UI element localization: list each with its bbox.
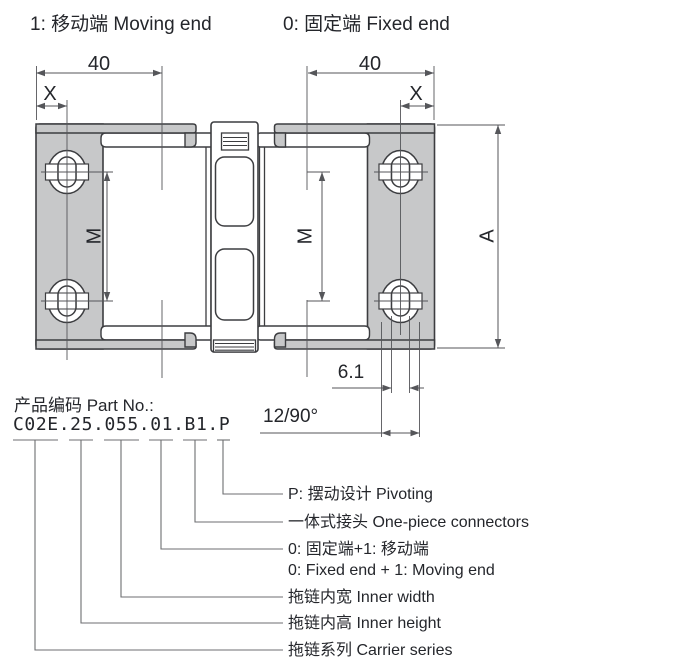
breakdown-row-inner-height: 拖链内高 Inner height bbox=[288, 613, 441, 634]
dim-slot-width: 6.1 bbox=[321, 362, 381, 384]
right-top-step bbox=[275, 133, 286, 147]
part-number-label: 产品编码 Part No.: bbox=[14, 391, 154, 416]
breakdown-row-ends-en: 0: Fixed end + 1: Moving end bbox=[288, 560, 495, 581]
breakdown-connector-lines bbox=[13, 440, 283, 650]
left-bottom-step bbox=[185, 333, 196, 347]
dim-hole-pitch-left: M bbox=[84, 228, 107, 245]
fixed-end-label: 0: 固定端 Fixed end bbox=[283, 9, 450, 36]
right-bottom-flange bbox=[275, 340, 435, 349]
dim-link-pitch: 12/90° bbox=[263, 406, 318, 428]
breakdown-row-connectors: 一体式接头 One-piece connectors bbox=[288, 512, 529, 533]
left-top-step bbox=[185, 133, 196, 147]
diagram-canvas: 1: 移动端 Moving end 0: 固定端 Fixed end 40 40… bbox=[0, 0, 700, 663]
left-bottom-flange bbox=[36, 340, 196, 349]
breakdown-row-pivoting: P: 摆动设计 Pivoting bbox=[288, 484, 433, 505]
dim-offset-left: X bbox=[30, 83, 70, 106]
dim-offset-right: X bbox=[396, 83, 436, 106]
breakdown-row-inner-width: 拖链内宽 Inner width bbox=[288, 587, 435, 608]
connector-window-top bbox=[216, 157, 254, 226]
moving-end-label: 1: 移动端 Moving end bbox=[30, 9, 212, 36]
dim-hole-pitch-right: M bbox=[295, 228, 318, 245]
breakdown-row-carrier-series: 拖链系列 Carrier series bbox=[288, 640, 452, 661]
right-bottom-step bbox=[275, 333, 286, 347]
dim-width-right: 40 bbox=[330, 53, 410, 76]
left-top-flange bbox=[36, 124, 196, 133]
breakdown-row-ends-zh: 0: 固定端+1: 移动端 bbox=[288, 539, 495, 560]
breakdown-row-ends: 0: 固定端+1: 移动端 0: Fixed end + 1: Moving e… bbox=[288, 539, 495, 581]
right-top-flange bbox=[275, 124, 435, 133]
part-number-code: C02E.25.055.01.B1.P bbox=[13, 414, 230, 435]
connector-window-bottom bbox=[216, 249, 254, 320]
dim-overall-height: A bbox=[477, 229, 500, 242]
center-link-connector bbox=[206, 122, 265, 352]
dim-width-left: 40 bbox=[59, 53, 139, 76]
